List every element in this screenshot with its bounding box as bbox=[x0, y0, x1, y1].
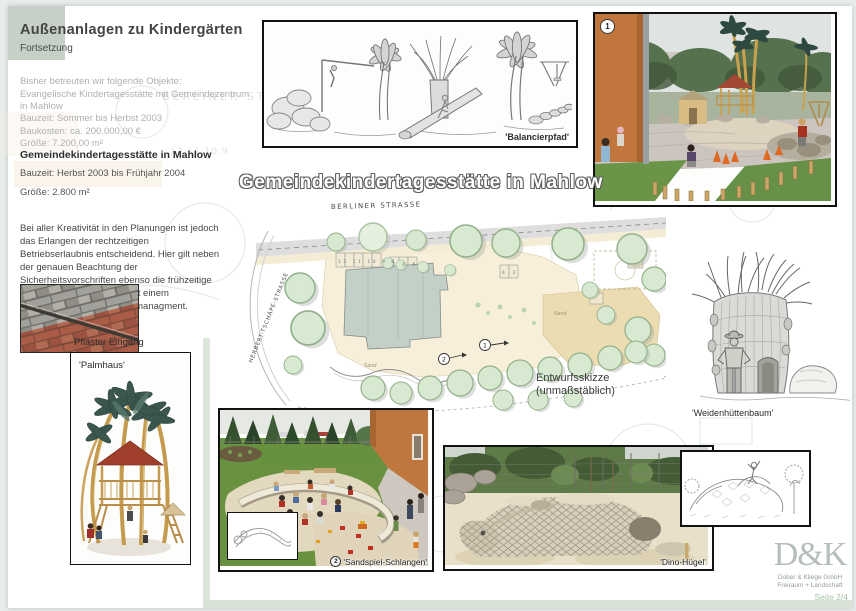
page-subtitle: Fortsetzung bbox=[20, 43, 73, 54]
palmhaus-photo-box: 'Palmhaus' bbox=[70, 352, 191, 565]
footer-block: D&K Dober & Kliege GmbH Freiraum + Lands… bbox=[768, 536, 852, 602]
weidenhuettenbaum-sketch bbox=[672, 250, 850, 405]
plan-parking-numbers-1: 12 11 10 9 8 bbox=[338, 259, 397, 265]
project-fact: Baukosten: ca. 200.000,00 € bbox=[20, 126, 162, 139]
previous-project-block: Bauzeit: Sommer bis Herbst 2003 Baukoste… bbox=[20, 113, 162, 151]
project-fact: Bauzeit: Sommer bis Herbst 2003 bbox=[20, 113, 162, 126]
plan-sand-note: Sand bbox=[554, 311, 567, 317]
plan-street-left-label: HERBERT-TSCHÄPE-STRASSE bbox=[247, 271, 290, 363]
palmhaus-photo bbox=[71, 353, 187, 561]
company-name: Dober & Kliege GmbH bbox=[768, 574, 852, 582]
balancierpfad-caption: 'Balancierpfad' bbox=[505, 132, 569, 142]
company-logo: D&K bbox=[768, 536, 852, 574]
company-tagline: Freiraum + Landschaft bbox=[768, 582, 852, 590]
dino-photo bbox=[445, 447, 708, 565]
plan-parking-numbers-2: 7 6 5 bbox=[392, 262, 418, 268]
current-project-title: Gemeindekindertagesstätte in Mahlow bbox=[20, 149, 211, 161]
dino-inset-sketch bbox=[682, 452, 805, 521]
intro-line: in Mahlow bbox=[20, 101, 249, 114]
current-project-bauzeit: Bauzeit: Herbst 2003 bis Frühjahr 2004 bbox=[20, 168, 185, 179]
plan-marker-1: 1 bbox=[483, 341, 487, 349]
plan-sand-note: Sand bbox=[364, 363, 377, 369]
current-project-groesse: Größe: 2.800 m² bbox=[20, 187, 90, 198]
dino-photo-box: 'Dino-Hügel' bbox=[443, 445, 714, 571]
main-title: Gemeindekindertagesstätte in Mahlow bbox=[239, 172, 603, 194]
sandspiel-number-badge: 2 bbox=[330, 556, 341, 567]
dino-inset-sketch-box bbox=[680, 450, 811, 527]
plan-caption-line1: Entwurfsskizze bbox=[536, 372, 615, 385]
page-title: Außenanlagen zu Kindergärten bbox=[20, 22, 243, 38]
plan-parking-numbers-3: 4 3 bbox=[502, 270, 518, 276]
intro-line: Evangelische Kindertagesstätte mit Gemei… bbox=[20, 89, 249, 102]
vertical-accent-band bbox=[203, 338, 210, 608]
sandspiel-photo-box: 2 'Sandspiel-Schlangen' bbox=[218, 408, 434, 572]
intro-line: Bisher betreuten wir folgende Objekte: bbox=[20, 76, 249, 89]
brochure-page: BERLINER STR 12.11.10.9 Außenanlagen zu … bbox=[0, 0, 856, 611]
balancierpfad-sketch bbox=[264, 22, 572, 142]
sandspiel-inset-sketch bbox=[227, 512, 298, 560]
weidenhuettenbaum-sketch-box: 'Weidenhüttenbaum' bbox=[672, 250, 850, 425]
plan-marker-2: 2 bbox=[442, 355, 446, 363]
sandspiel-caption: 2 'Sandspiel-Schlangen' bbox=[330, 556, 427, 567]
playground-photo bbox=[595, 14, 831, 201]
palmhaus-caption: 'Palmhaus' bbox=[79, 360, 125, 371]
plan-caption: Entwurfsskizze (unmaßstäblich) bbox=[536, 372, 615, 398]
balancierpfad-sketch-box: 'Balancierpfad' bbox=[262, 20, 578, 148]
intro-block: Bisher betreuten wir folgende Objekte: E… bbox=[20, 76, 249, 114]
sandspiel-caption-text: 'Sandspiel-Schlangen' bbox=[343, 557, 427, 567]
weidenhuettenbaum-caption: 'Weidenhüttenbaum' bbox=[692, 408, 773, 418]
plan-street-top-label: BERLINER STRASSE bbox=[331, 201, 422, 211]
photo1-number-badge: 1 bbox=[600, 19, 615, 34]
playground-photo-box: 1 bbox=[593, 12, 837, 207]
plan-caption-line2: (unmaßstäblich) bbox=[536, 385, 615, 398]
dino-caption: 'Dino-Hügel' bbox=[660, 557, 706, 567]
pflaster-caption: Pflaster Eingang bbox=[74, 337, 144, 348]
bottom-accent-bar bbox=[203, 600, 852, 608]
page-number: Seite 2/4 bbox=[768, 592, 852, 602]
